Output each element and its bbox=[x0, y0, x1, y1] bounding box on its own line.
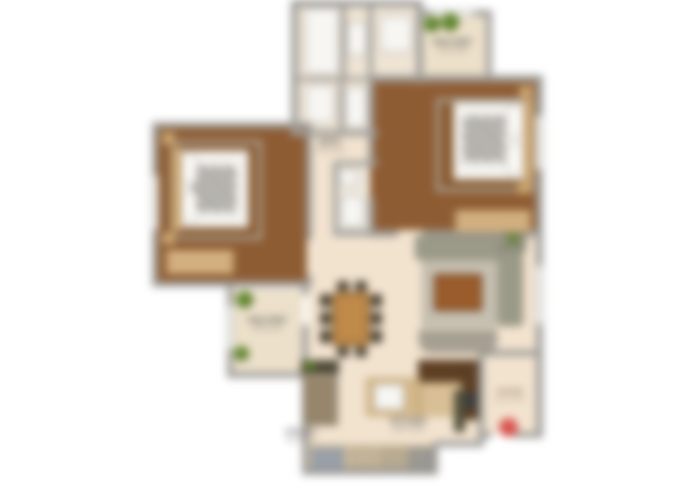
utility-box bbox=[312, 448, 344, 470]
room-dim: 10'0 x 8'0 bbox=[384, 426, 432, 434]
room-label: BALCONY 5'0 x 6'0 bbox=[424, 38, 482, 54]
utility-counter bbox=[380, 448, 406, 468]
room-dim: 8'0 x 5'0 bbox=[238, 325, 298, 333]
wall bbox=[302, 287, 308, 295]
plant-icon bbox=[508, 234, 518, 244]
dining-chair bbox=[355, 281, 367, 291]
dining-chair bbox=[320, 312, 331, 325]
pillow bbox=[181, 192, 197, 222]
wall bbox=[339, 80, 344, 133]
wall bbox=[368, 82, 374, 163]
dining-chair bbox=[355, 347, 367, 357]
room-label: UTILITY 6'0 x 3'0 bbox=[278, 428, 324, 444]
window bbox=[226, 305, 234, 350]
wall bbox=[333, 161, 378, 166]
room-name: KITCHEN bbox=[390, 417, 426, 425]
wall bbox=[478, 432, 492, 438]
room-label: BATH 7'5 x 5'0 bbox=[302, 138, 358, 154]
sofa bbox=[415, 235, 501, 260]
wall bbox=[152, 122, 312, 128]
room-name: BALCONY bbox=[434, 38, 473, 46]
wall bbox=[291, 0, 298, 135]
dining-chair bbox=[371, 330, 382, 343]
wall bbox=[291, 130, 378, 136]
window bbox=[151, 175, 159, 230]
washing-machine bbox=[380, 16, 412, 52]
room-label: KITCHEN 10'0 x 8'0 bbox=[384, 417, 432, 433]
utility-counter bbox=[350, 449, 376, 468]
room-label: FOYER 6'0 x 4'0 bbox=[488, 388, 532, 404]
wall bbox=[486, 10, 492, 80]
room-name: UTILITY bbox=[285, 428, 316, 436]
room-dim: 6'0 x 3'0 bbox=[278, 437, 324, 445]
dining-chair bbox=[337, 281, 349, 291]
window bbox=[535, 115, 544, 170]
wall bbox=[227, 372, 307, 378]
wardrobe bbox=[455, 210, 531, 232]
toilet bbox=[347, 22, 367, 56]
dining-chair bbox=[371, 294, 382, 307]
entrance-marker-icon bbox=[499, 418, 518, 437]
room-name: BATH bbox=[319, 138, 341, 146]
pillow bbox=[507, 144, 523, 174]
plant-icon bbox=[424, 16, 440, 32]
floor-plan: BALCONY 5'0 x 6'0 BATH 7'5 x 5'0 B bbox=[0, 0, 700, 488]
wall bbox=[368, 230, 398, 237]
dining-chair bbox=[371, 312, 382, 325]
shower-tray bbox=[305, 8, 339, 74]
nightstand bbox=[162, 132, 175, 145]
bed-blanket bbox=[463, 116, 505, 162]
wall bbox=[333, 161, 338, 235]
room-dim: 5'0 x 6'0 bbox=[424, 47, 482, 55]
utility-box bbox=[408, 448, 432, 470]
tv-console bbox=[419, 330, 497, 353]
nightstand bbox=[517, 182, 531, 194]
door-leaf bbox=[454, 390, 465, 432]
sofa bbox=[498, 242, 523, 326]
floor-plan-image: BALCONY 5'0 x 6'0 BATH 7'5 x 5'0 B bbox=[0, 0, 700, 488]
plant-icon bbox=[441, 13, 459, 31]
wall bbox=[514, 432, 542, 438]
wall bbox=[341, 3, 346, 79]
washbasin bbox=[339, 170, 358, 185]
washbasin bbox=[306, 85, 334, 123]
wall bbox=[432, 444, 438, 475]
wall bbox=[478, 350, 484, 441]
dining-chair bbox=[320, 330, 331, 343]
room-name: BALCONY bbox=[249, 316, 288, 324]
toilet bbox=[341, 196, 364, 227]
wardrobe bbox=[166, 250, 234, 274]
window bbox=[535, 265, 544, 325]
wall bbox=[368, 75, 543, 82]
dining-chair bbox=[320, 294, 331, 307]
hob bbox=[465, 392, 476, 410]
coffee-table bbox=[434, 274, 482, 311]
pillow bbox=[181, 154, 197, 184]
room-label: BALCONY 8'0 x 5'0 bbox=[238, 316, 298, 332]
room-name: FOYER bbox=[497, 388, 524, 396]
dining-table bbox=[332, 292, 370, 346]
bed-blanket bbox=[192, 166, 236, 212]
dining-chair bbox=[337, 347, 349, 357]
room-dim: 7'5 x 5'0 bbox=[302, 147, 358, 155]
pillow bbox=[507, 106, 523, 136]
plant-icon bbox=[236, 291, 253, 308]
headboard bbox=[524, 98, 533, 184]
wall bbox=[434, 441, 484, 447]
wall bbox=[306, 275, 312, 287]
utility-rack bbox=[302, 374, 338, 426]
nightstand bbox=[162, 232, 175, 245]
wall bbox=[291, 0, 423, 7]
toilet bbox=[345, 87, 367, 127]
plant-icon bbox=[305, 361, 315, 371]
room-dim: 6'0 x 4'0 bbox=[488, 397, 532, 405]
wall bbox=[368, 3, 373, 79]
nightstand bbox=[519, 86, 533, 98]
headboard bbox=[172, 146, 181, 232]
plant-icon bbox=[234, 346, 249, 361]
kitchen-sink bbox=[374, 384, 404, 410]
